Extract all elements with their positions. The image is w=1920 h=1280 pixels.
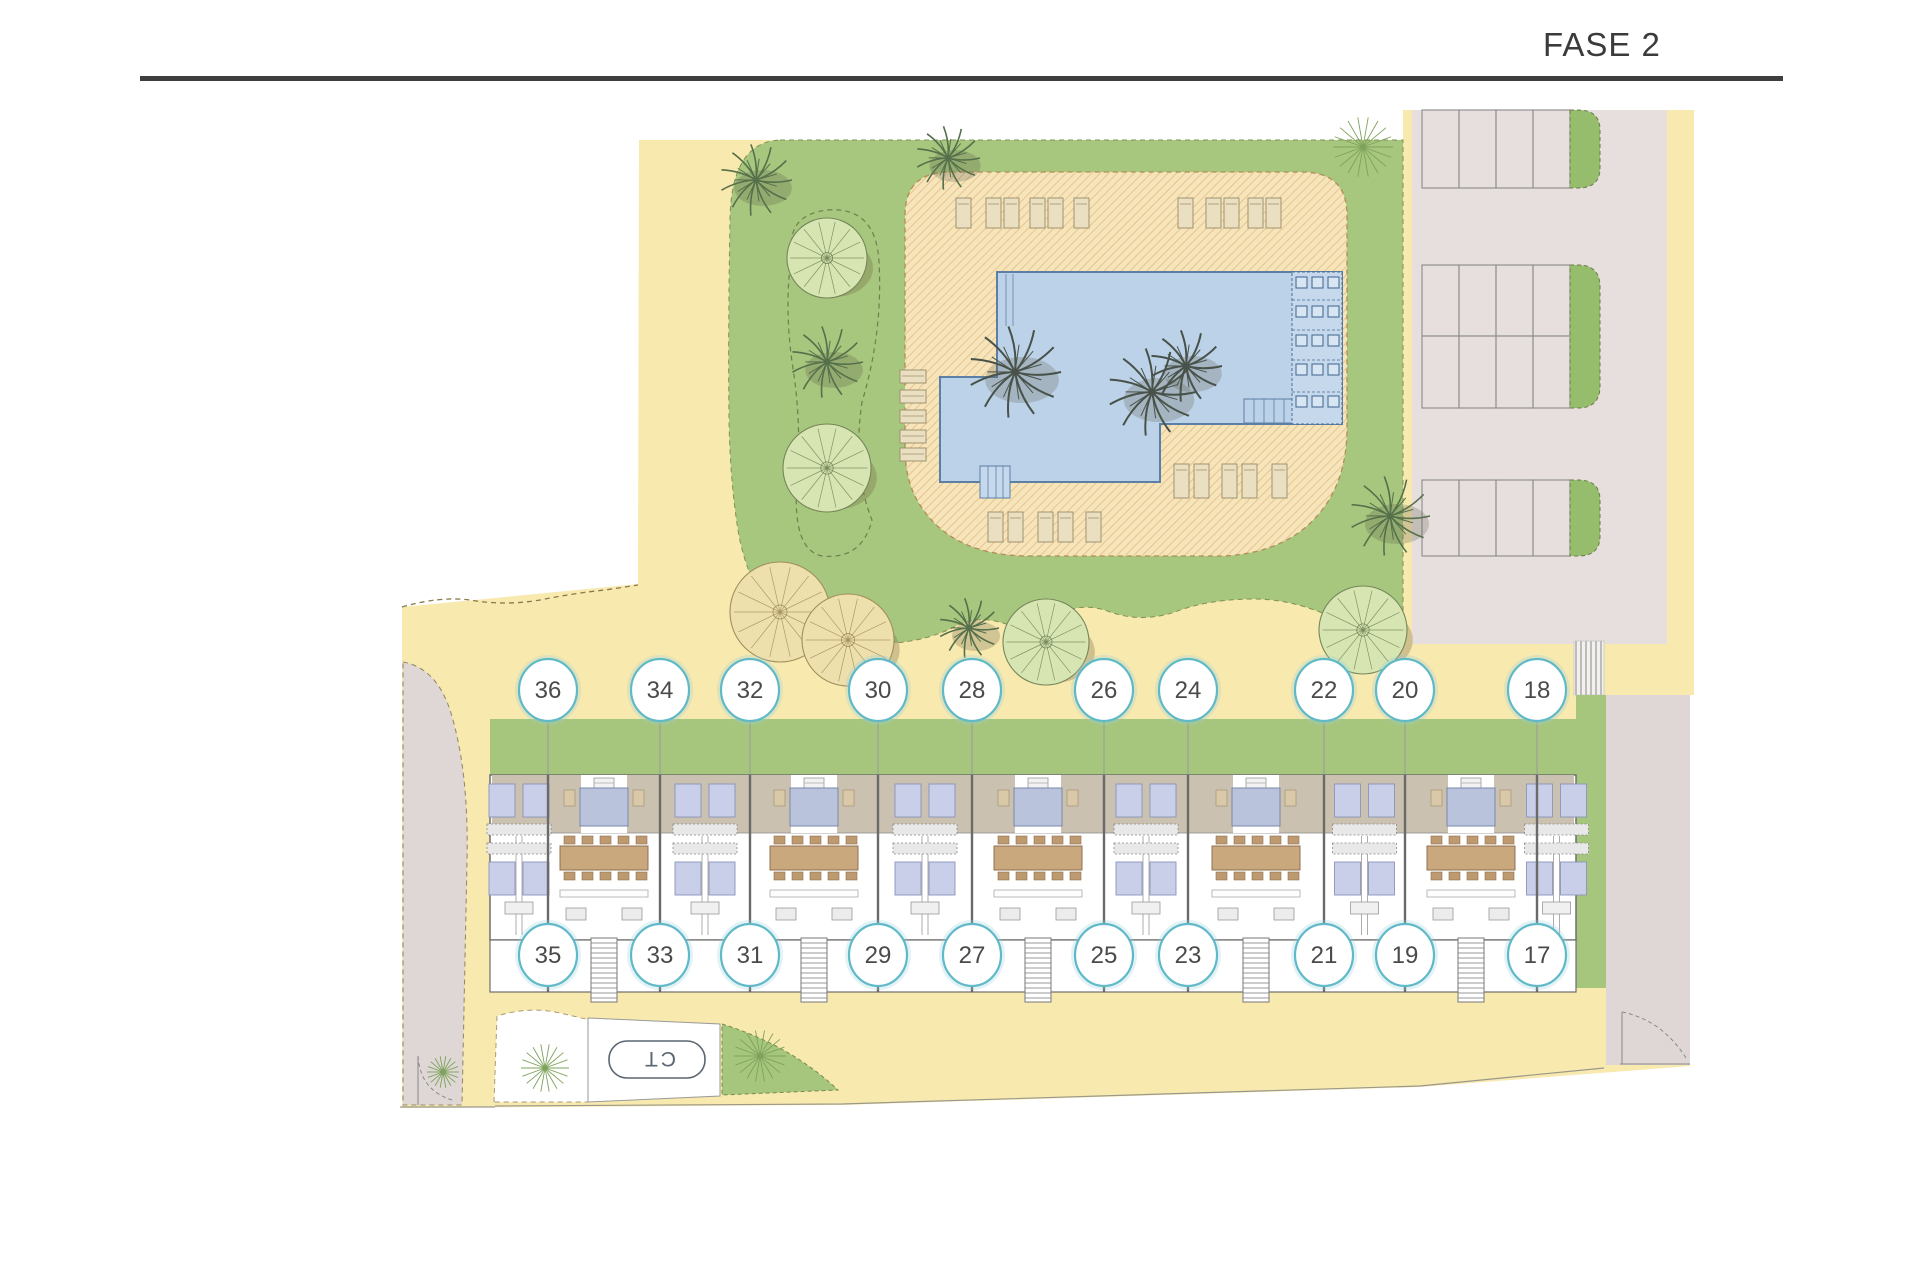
site-plan-drawing: CT 3635343332313029282726252423222120191… bbox=[0, 0, 1920, 1280]
unit-circle-28[interactable]: 28 bbox=[939, 655, 1005, 725]
unit-circle-36[interactable]: 36 bbox=[515, 655, 581, 725]
unit-circle-25[interactable]: 25 bbox=[1071, 920, 1137, 990]
unit-number: 30 bbox=[865, 677, 892, 704]
unit-number: 24 bbox=[1175, 677, 1202, 704]
unit-number: 34 bbox=[647, 677, 674, 704]
unit-circle-17[interactable]: 17 bbox=[1504, 920, 1570, 990]
unit-number: 33 bbox=[647, 942, 674, 969]
unit-number: 17 bbox=[1524, 942, 1551, 969]
unit-number: 20 bbox=[1392, 677, 1419, 704]
unit-number: 27 bbox=[959, 942, 986, 969]
unit-circle-18[interactable]: 18 bbox=[1504, 655, 1570, 725]
unit-number: 21 bbox=[1311, 942, 1338, 969]
unit-number: 25 bbox=[1091, 942, 1118, 969]
unit-circle-27[interactable]: 27 bbox=[939, 920, 1005, 990]
unit-circle-29[interactable]: 29 bbox=[845, 920, 911, 990]
unit-circle-33[interactable]: 33 bbox=[627, 920, 693, 990]
transformer-badge: CT bbox=[609, 1041, 705, 1078]
pedestrian-crossing bbox=[1574, 641, 1604, 695]
unit-circle-31[interactable]: 31 bbox=[717, 920, 783, 990]
unit-circle-20[interactable]: 20 bbox=[1372, 655, 1438, 725]
unit-number: 26 bbox=[1091, 677, 1118, 704]
unit-circle-26[interactable]: 26 bbox=[1071, 655, 1137, 725]
unit-circle-22[interactable]: 22 bbox=[1291, 655, 1357, 725]
site-plan-page: FASE 2 bbox=[0, 0, 1920, 1280]
unit-number: 22 bbox=[1311, 677, 1338, 704]
unit-circle-34[interactable]: 34 bbox=[627, 655, 693, 725]
unit-circle-35[interactable]: 35 bbox=[515, 920, 581, 990]
unit-number: 35 bbox=[535, 942, 562, 969]
unit-circle-30[interactable]: 30 bbox=[845, 655, 911, 725]
unit-number: 23 bbox=[1175, 942, 1202, 969]
transformer-label: CT bbox=[642, 1047, 676, 1070]
unit-circle-32[interactable]: 32 bbox=[717, 655, 783, 725]
unit-circle-21[interactable]: 21 bbox=[1291, 920, 1357, 990]
right-grey-area bbox=[1606, 695, 1690, 1065]
unit-number: 31 bbox=[737, 942, 764, 969]
unit-number: 32 bbox=[737, 677, 764, 704]
unit-number: 29 bbox=[865, 942, 892, 969]
unit-circle-24[interactable]: 24 bbox=[1155, 655, 1221, 725]
unit-number: 28 bbox=[959, 677, 986, 704]
unit-number: 18 bbox=[1524, 677, 1551, 704]
unit-number: 36 bbox=[535, 677, 562, 704]
unit-circle-19[interactable]: 19 bbox=[1372, 920, 1438, 990]
pool-spa-grid bbox=[1292, 272, 1342, 424]
parking-area bbox=[1412, 110, 1667, 644]
unit-circle-23[interactable]: 23 bbox=[1155, 920, 1221, 990]
unit-number: 19 bbox=[1392, 942, 1419, 969]
